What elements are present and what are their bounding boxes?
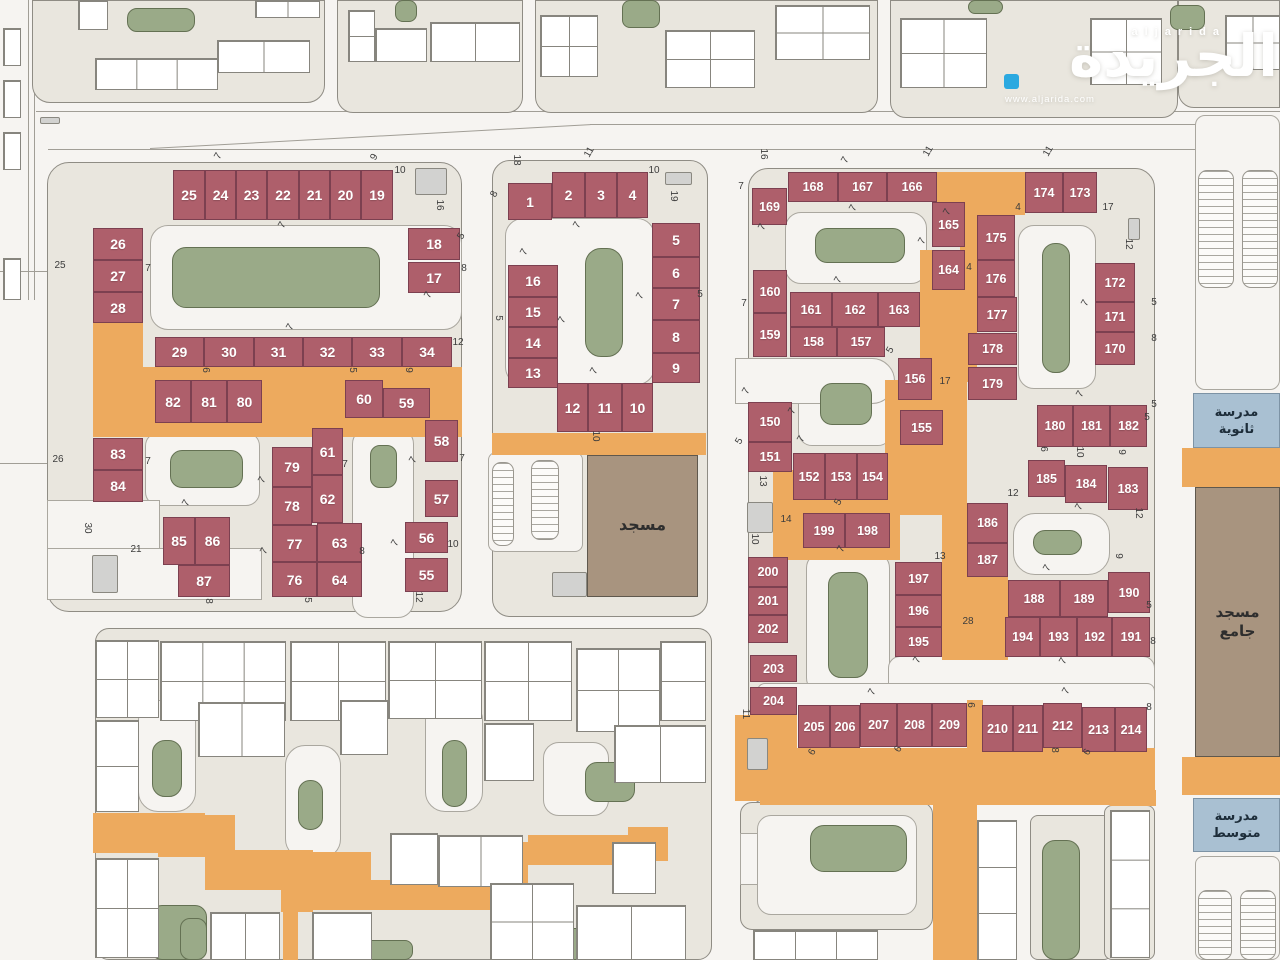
dimension-label: 8 — [1141, 635, 1165, 647]
plot-174[interactable]: 174 — [1025, 172, 1063, 213]
plot-185[interactable]: 185 — [1028, 460, 1065, 497]
housing-plot-grid — [95, 858, 159, 958]
plot-19[interactable]: 19 — [361, 170, 393, 220]
dimension-label: 8 — [1137, 701, 1161, 713]
housing-plot-grid — [3, 28, 21, 66]
dimension-label: 5 — [1142, 296, 1166, 308]
plot-1[interactable]: 1 — [508, 183, 552, 220]
housing-plot-grid — [614, 725, 706, 783]
grand-mosque-building-label: مسجد جامع — [1215, 603, 1259, 642]
plot-8[interactable]: 8 — [652, 320, 700, 353]
dimension-label: 14 — [774, 513, 798, 525]
housing-plot-grid — [490, 883, 574, 960]
plot-24[interactable]: 24 — [205, 170, 236, 220]
dimension-label: 7 — [136, 455, 160, 467]
road-segment — [283, 908, 298, 960]
dimension-label: 9 — [1113, 544, 1125, 568]
dimension-label: 21 — [124, 543, 148, 555]
plot-20[interactable]: 20 — [330, 170, 361, 220]
park — [1042, 840, 1080, 960]
plot-160[interactable]: 160 — [753, 270, 787, 313]
parking-stripes — [1198, 170, 1234, 288]
utility-box — [747, 738, 768, 770]
park — [815, 228, 905, 263]
housing-plot-grid — [1110, 810, 1150, 958]
plot-167[interactable]: 167 — [838, 172, 887, 202]
housing-plot-grid — [900, 18, 987, 88]
plot-209[interactable]: 209 — [932, 703, 967, 747]
plot-192[interactable]: 192 — [1077, 617, 1112, 657]
housing-plot-grid — [390, 833, 438, 885]
plot-5[interactable]: 5 — [652, 223, 700, 257]
dimension-label: 7 — [136, 262, 160, 274]
dimension-label: 10 — [590, 424, 602, 448]
parking-stripes — [1242, 170, 1278, 288]
mosque-building: مسجد — [587, 455, 698, 597]
plot-62[interactable]: 62 — [312, 475, 343, 523]
park — [127, 8, 195, 32]
plot-3[interactable]: 3 — [585, 172, 617, 218]
parking-stripes — [1240, 890, 1276, 960]
plot-82[interactable]: 82 — [155, 380, 191, 423]
dimension-label: 4 — [1006, 201, 1030, 213]
plot-152[interactable]: 152 — [793, 453, 825, 500]
plot-166[interactable]: 166 — [887, 172, 937, 202]
plot-170[interactable]: 170 — [1095, 332, 1135, 365]
plot-64[interactable]: 64 — [317, 562, 362, 597]
plot-60[interactable]: 60 — [345, 380, 383, 418]
housing-plot-grid — [753, 930, 878, 960]
dimension-label: 5 — [1135, 411, 1159, 423]
plot-214[interactable]: 214 — [1115, 707, 1147, 752]
housing-plot-grid — [95, 720, 139, 812]
plot-204[interactable]: 204 — [750, 687, 797, 715]
road-line — [590, 124, 1280, 125]
dimension-label: 7 — [450, 452, 474, 464]
secondary-school-label: مدرسة ثانوية — [1215, 404, 1259, 438]
dimension-label: 28 — [956, 615, 980, 627]
plot-4[interactable]: 4 — [617, 172, 648, 218]
middle-school: مدرسة متوسط — [1193, 798, 1280, 852]
dimension-label: 12 — [1001, 487, 1025, 499]
park — [442, 740, 467, 807]
plot-187[interactable]: 187 — [967, 543, 1008, 577]
housing-plot-grid — [375, 28, 427, 62]
road-segment — [760, 748, 1155, 805]
utility-box — [415, 168, 447, 195]
housing-plot-grid — [438, 835, 523, 887]
dimension-label: 13 — [928, 550, 952, 562]
dimension-label: 12 — [1123, 232, 1135, 256]
plot-202[interactable]: 202 — [748, 615, 788, 643]
plot-10[interactable]: 10 — [622, 383, 653, 432]
dimension-label: 8 — [1049, 738, 1061, 762]
dimension-label: 8 — [452, 262, 476, 274]
plot-163[interactable]: 163 — [878, 292, 920, 327]
plot-85[interactable]: 85 — [163, 517, 195, 565]
plot-178[interactable]: 178 — [968, 333, 1017, 365]
housing-plot-grid — [388, 641, 482, 719]
dimension-label: 16 — [758, 142, 770, 166]
dimension-label: 5 — [728, 428, 750, 455]
plot-151[interactable]: 151 — [748, 442, 792, 472]
plot-31[interactable]: 31 — [254, 337, 303, 367]
dimension-label: 6 — [1038, 437, 1050, 461]
dimension-label: 19 — [668, 184, 680, 208]
plot-168[interactable]: 168 — [788, 172, 838, 202]
dimension-label: 7 — [729, 180, 753, 192]
housing-plot-grid — [540, 15, 598, 77]
plot-210[interactable]: 210 — [982, 705, 1013, 752]
plot-171[interactable]: 171 — [1095, 302, 1135, 332]
dimension-label: 11 — [917, 138, 939, 165]
plot-23[interactable]: 23 — [236, 170, 267, 220]
plot-154[interactable]: 154 — [857, 453, 888, 500]
parking-stripes — [531, 460, 559, 540]
dimension-label: 6 — [200, 358, 212, 382]
road-segment — [93, 323, 143, 369]
plot-207[interactable]: 207 — [860, 703, 897, 747]
plot-159[interactable]: 159 — [753, 313, 787, 357]
road-line — [48, 149, 1280, 150]
plot-179[interactable]: 179 — [968, 367, 1017, 400]
plot-172[interactable]: 172 — [1095, 263, 1135, 302]
park — [1042, 243, 1070, 373]
plot-155[interactable]: 155 — [900, 410, 943, 445]
housing-plot-grid — [78, 0, 108, 30]
plot-81[interactable]: 81 — [191, 380, 227, 423]
dimension-label: 5 — [302, 588, 314, 612]
logo-arabic-text: الجريدة — [1069, 28, 1278, 86]
dimension-label: 11 — [1037, 138, 1059, 165]
plot-26[interactable]: 26 — [93, 228, 143, 260]
plot-9[interactable]: 9 — [652, 353, 700, 383]
park — [172, 247, 380, 308]
dimension-label: 16 — [434, 193, 446, 217]
road-segment — [158, 813, 205, 857]
park — [180, 918, 207, 960]
plot-25[interactable]: 25 — [173, 170, 205, 220]
housing-plot-grid — [95, 640, 159, 718]
plot-206[interactable]: 206 — [830, 705, 860, 748]
plot-16[interactable]: 16 — [508, 265, 558, 297]
dimension-label: 9 — [403, 358, 415, 382]
plot-194[interactable]: 194 — [1005, 617, 1040, 657]
housing-plot-grid — [340, 700, 388, 755]
park — [152, 740, 182, 797]
dimension-label: 26 — [46, 453, 70, 465]
park — [298, 780, 323, 830]
utility-box — [92, 555, 118, 593]
park — [370, 445, 397, 488]
road-segment — [1110, 790, 1156, 806]
dimension-label: 10 — [1074, 440, 1086, 464]
plot-55[interactable]: 55 — [405, 558, 448, 592]
dimension-label: 11 — [740, 702, 752, 726]
housing-plot-grid — [3, 132, 21, 170]
parking-stripes — [1198, 890, 1232, 960]
housing-plot-grid — [576, 905, 686, 960]
housing-plot-grid — [484, 723, 534, 781]
plot-13[interactable]: 13 — [508, 358, 558, 388]
park — [968, 0, 1003, 14]
housing-plot-grid — [977, 820, 1017, 960]
plot-200[interactable]: 200 — [748, 557, 788, 587]
dimension-label: 5 — [1142, 398, 1166, 410]
dimension-label: 7 — [732, 297, 756, 309]
mosque-building-label: مسجد — [619, 516, 666, 537]
dimension-label: 10 — [388, 164, 412, 176]
utility-box — [40, 117, 60, 124]
dimension-label: 5 — [493, 306, 505, 330]
housing-plot-grid — [430, 22, 520, 62]
dimension-label: 5 — [1137, 599, 1161, 611]
park — [585, 248, 623, 357]
plot-186[interactable]: 186 — [967, 503, 1008, 543]
dimension-label: 8 — [203, 589, 215, 613]
plot-193[interactable]: 193 — [1040, 617, 1077, 657]
park — [622, 0, 660, 28]
plot-79[interactable]: 79 — [272, 447, 312, 487]
dimension-label: 25 — [48, 259, 72, 271]
housing-plot-grid — [95, 58, 218, 90]
housing-plot-grid — [210, 912, 280, 960]
plot-158[interactable]: 158 — [790, 327, 837, 357]
park — [395, 0, 417, 22]
plot-77[interactable]: 77 — [272, 525, 317, 562]
housing-plot-grid — [660, 641, 706, 721]
plot-157[interactable]: 157 — [837, 327, 885, 357]
road-segment — [205, 815, 235, 890]
plot-32[interactable]: 32 — [303, 337, 352, 367]
middle-school-label: مدرسة متوسط — [1212, 808, 1260, 842]
plot-29[interactable]: 29 — [155, 337, 204, 367]
dimension-label: 12 — [446, 336, 470, 348]
park — [820, 383, 872, 425]
road-segment — [281, 850, 313, 912]
plot-2[interactable]: 2 — [552, 172, 585, 218]
housing-plot-grid — [217, 40, 310, 73]
housing-plot-grid — [198, 702, 285, 757]
housing-plot-grid — [775, 5, 870, 60]
plot-59[interactable]: 59 — [383, 388, 430, 418]
plot-33[interactable]: 33 — [352, 337, 402, 367]
plot-86[interactable]: 86 — [195, 517, 230, 565]
housing-plot-grid — [3, 80, 21, 118]
housing-plot-grid — [665, 30, 755, 88]
plot-211[interactable]: 211 — [1013, 705, 1043, 752]
park — [828, 572, 868, 678]
dimension-label: 17 — [933, 375, 957, 387]
plot-188[interactable]: 188 — [1008, 580, 1060, 617]
plot-177[interactable]: 177 — [977, 297, 1017, 332]
plot-15[interactable]: 15 — [508, 297, 558, 327]
park — [1033, 530, 1082, 555]
utility-box — [552, 572, 587, 597]
plot-84[interactable]: 84 — [93, 470, 143, 502]
dimension-label: 8 — [350, 545, 374, 557]
dimension-label: 12 — [1133, 501, 1145, 525]
plot-189[interactable]: 189 — [1060, 580, 1108, 617]
dimension-label: 13 — [757, 469, 769, 493]
housing-plot-grid — [576, 648, 660, 732]
dimension-label: 17 — [1096, 201, 1120, 213]
dimension-label: 8 — [1142, 332, 1166, 344]
housing-plot-grid — [312, 912, 372, 960]
plot-12[interactable]: 12 — [557, 383, 588, 432]
park — [170, 450, 243, 488]
plot-201[interactable]: 201 — [748, 587, 788, 615]
road-segment — [1182, 757, 1280, 795]
dimension-label: 10 — [642, 164, 666, 176]
road-segment — [93, 813, 158, 853]
road-segment — [313, 852, 371, 910]
plot-162[interactable]: 162 — [832, 292, 878, 327]
dimension-label: 9 — [1116, 440, 1128, 464]
dimension-label: 30 — [82, 516, 94, 540]
road-segment — [933, 805, 977, 960]
housing-plot-grid — [3, 258, 21, 300]
plot-6[interactable]: 6 — [652, 257, 700, 288]
plot-156[interactable]: 156 — [898, 358, 932, 400]
dimension-label: 12 — [413, 585, 425, 609]
plot-176[interactable]: 176 — [977, 260, 1015, 297]
plot-78[interactable]: 78 — [272, 487, 312, 525]
plot-203[interactable]: 203 — [750, 655, 797, 682]
housing-plot-grid — [612, 842, 656, 894]
plot-21[interactable]: 21 — [299, 170, 330, 220]
plot-28[interactable]: 28 — [93, 292, 143, 323]
housing-plot-grid — [348, 10, 375, 62]
plot-196[interactable]: 196 — [895, 595, 942, 627]
road-line — [28, 0, 29, 300]
plot-173[interactable]: 173 — [1063, 172, 1097, 213]
plot-80[interactable]: 80 — [227, 380, 262, 423]
secondary-school: مدرسة ثانوية — [1193, 393, 1280, 448]
dimension-label: 7 — [333, 458, 357, 470]
plot-175[interactable]: 175 — [977, 215, 1015, 260]
dimension-label: 6 — [965, 693, 977, 717]
plot-14[interactable]: 14 — [508, 327, 558, 358]
dimension-label: 18 — [511, 148, 523, 172]
dimension-label: 5 — [347, 358, 359, 382]
dimension-label: 4 — [957, 261, 981, 273]
subdivision-map: aljarida الجريدة www.aljarida.com مسجدمس… — [0, 0, 1280, 960]
dimension-label: 5 — [688, 288, 712, 300]
plot-161[interactable]: 161 — [790, 292, 832, 327]
plot-197[interactable]: 197 — [895, 562, 942, 595]
grand-mosque-building: مسجد جامع — [1195, 487, 1280, 757]
park — [810, 825, 907, 872]
housing-plot-grid — [484, 641, 572, 721]
road-segment — [235, 850, 281, 890]
housing-plot-grid — [255, 0, 320, 18]
plot-198[interactable]: 198 — [845, 513, 890, 548]
dimension-label: 10 — [441, 538, 465, 550]
logo-dot — [1004, 74, 1019, 89]
parking-stripes — [492, 462, 514, 546]
dimension-label: 10 — [749, 527, 761, 551]
road-segment — [1182, 448, 1280, 487]
plot-57[interactable]: 57 — [425, 480, 458, 517]
aljarida-logo: aljarida الجريدة www.aljarida.com — [990, 18, 1280, 110]
logo-url-text: www.aljarida.com — [1005, 94, 1095, 105]
